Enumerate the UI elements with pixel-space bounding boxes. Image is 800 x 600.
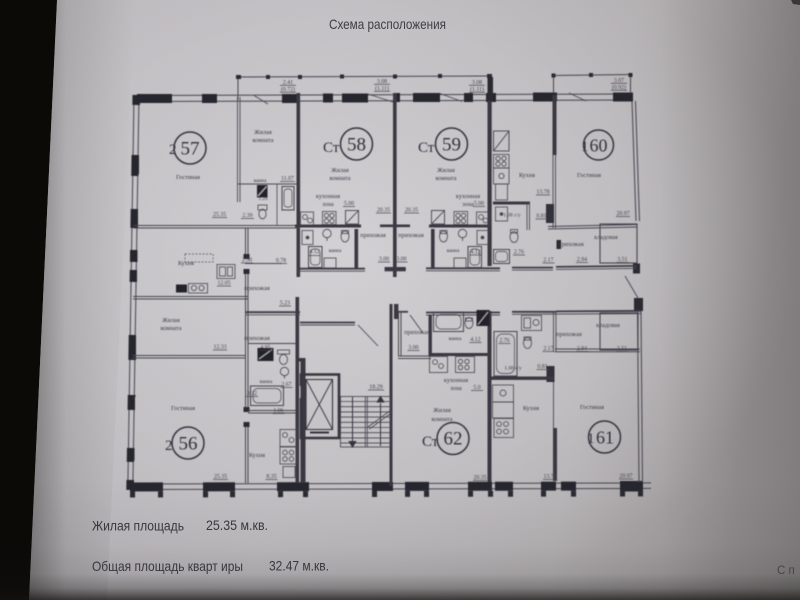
svg-text:Гостиная: Гостиная [577,172,601,179]
svg-text:ванна: ванна [260,379,273,385]
svg-text:3.51: 3.51 [617,257,627,263]
svg-text:58: 58 [347,135,366,156]
svg-text:2.76: 2.76 [499,338,509,344]
svg-text:3.51: 3.51 [617,346,627,352]
svg-text:13.78: 13.78 [536,190,549,196]
svg-text:(0.72): (0.72) [281,86,295,93]
svg-text:20.35: 20.35 [473,475,486,481]
svg-text:прихожая: прихожая [556,331,582,338]
svg-text:20.97: 20.97 [616,211,629,217]
svg-text:11.07: 11.07 [281,176,294,182]
svg-text:18.29: 18.29 [369,385,383,391]
svg-text:прихожая: прихожая [398,232,424,239]
svg-text:57: 57 [181,139,200,160]
svg-text:3.32: 3.32 [247,391,257,397]
svg-text:25.35 м.кв.: 25.35 м.кв. [206,518,268,533]
svg-text:Жилая площадь: Жилая площадь [92,519,184,534]
svg-text:4.95: 4.95 [260,345,270,351]
svg-text:прихожая: прихожая [244,285,270,292]
svg-text:С п: С п [777,565,795,577]
svg-text:(1.11): (1.11) [470,86,484,93]
svg-text:61: 61 [596,428,614,448]
svg-text:кухонная: кухонная [444,377,468,384]
svg-text:ванна: ванна [329,248,342,254]
svg-text:Кухня: Кухня [178,260,194,267]
svg-text:прихожая: прихожая [360,232,386,239]
svg-text:Ст: Ст [422,434,439,450]
svg-text:Кухня: Кухня [519,172,535,179]
svg-text:32.47 м.кв.: 32.47 м.кв. [269,559,329,574]
svg-text:прихожая: прихожая [404,329,430,336]
svg-text:ванна: ванна [447,248,460,254]
svg-text:Кухня: Кухня [249,452,265,459]
svg-text:1.28: 1.28 [258,196,267,202]
svg-text:20.35: 20.35 [377,208,390,214]
svg-text:комната: комната [329,175,350,182]
svg-text:Ст: Ст [323,140,340,156]
svg-text:2.17: 2.17 [543,258,553,264]
svg-text:5.00: 5.00 [474,201,484,207]
svg-text:62: 62 [444,429,463,450]
svg-text:Гостиная: Гостиная [580,404,604,411]
svg-text:прихожая: прихожая [244,335,270,342]
svg-text:комната: комната [435,175,456,182]
svg-text:Общая площадь кварт иры: Общая площадь кварт иры [92,559,243,574]
svg-text:(0.92): (0.92) [612,84,626,91]
svg-text:Гостиная: Гостиная [176,174,200,181]
svg-text:(1.11): (1.11) [375,85,389,92]
svg-text:59: 59 [442,135,461,156]
svg-text:1.08 с/у: 1.08 с/у [504,366,522,372]
svg-text:комната: комната [431,416,452,423]
svg-text:комната: комната [160,325,181,332]
svg-text:0.81: 0.81 [537,364,547,370]
svg-text:зона: зона [322,201,334,208]
svg-text:2.67: 2.67 [281,382,291,388]
svg-text:12.05: 12.05 [217,281,230,287]
svg-text:ванна: ванна [254,178,267,184]
svg-text:12.33: 12.33 [213,345,226,351]
svg-text:13.78: 13.78 [543,474,556,480]
svg-text:3.00: 3.00 [379,257,389,263]
svg-text:Схема расположения: Схема расположения [329,17,446,32]
svg-text:комната: комната [252,137,273,144]
svg-text:2.39: 2.39 [242,213,252,219]
svg-text:0.81: 0.81 [536,214,546,220]
svg-text:2.94: 2.94 [577,257,587,263]
svg-text:25.35: 25.35 [214,474,227,480]
svg-text:2.76: 2.76 [514,250,524,256]
svg-text:20.35: 20.35 [405,208,418,214]
svg-text:4.12: 4.12 [309,249,319,255]
svg-text:кухонная: кухонная [456,193,480,200]
svg-text:4.12: 4.12 [470,337,480,343]
svg-text:5.23: 5.23 [280,301,290,307]
svg-text:Жилая: Жилая [254,129,272,136]
svg-text:0.78: 0.78 [276,258,286,264]
svg-text:Ст: Ст [418,140,435,156]
svg-text:кухонная: кухонная [316,193,340,200]
svg-text:Жилая: Жилая [162,317,180,324]
svg-text:кладовая: кладовая [594,234,618,241]
svg-text:2.17: 2.17 [543,346,553,352]
svg-text:3.00: 3.00 [396,257,406,263]
svg-text:прихожая: прихожая [558,241,584,248]
svg-text:60: 60 [590,136,608,156]
svg-text:25.35: 25.35 [213,212,226,218]
svg-text:56: 56 [179,434,198,455]
svg-text:Жилая: Жилая [437,167,455,174]
svg-text:5.0: 5.0 [473,385,480,391]
svg-text:2: 2 [165,438,173,454]
svg-text:Жилая: Жилая [331,167,349,174]
svg-text:5.00: 5.00 [344,201,354,207]
svg-text:кладовая: кладовая [596,322,620,329]
svg-text:20.97: 20.97 [619,474,632,480]
svg-text:1.06: 1.06 [273,408,283,414]
svg-text:1.08 с/у: 1.08 с/у [503,213,521,219]
svg-text:4.12: 4.12 [470,250,480,256]
svg-text:Гостиная: Гостиная [171,405,195,412]
svg-text:Жилая: Жилая [433,407,451,414]
svg-text:8.35: 8.35 [266,474,276,480]
svg-text:3.00: 3.00 [408,345,418,351]
svg-text:зона: зона [462,201,474,208]
svg-text:ванна: ванна [449,336,462,342]
svg-text:зона: зона [450,385,462,392]
svg-text:2.94: 2.94 [577,346,587,352]
svg-text:2.50: 2.50 [242,258,252,264]
svg-text:Кухня: Кухня [523,405,539,412]
